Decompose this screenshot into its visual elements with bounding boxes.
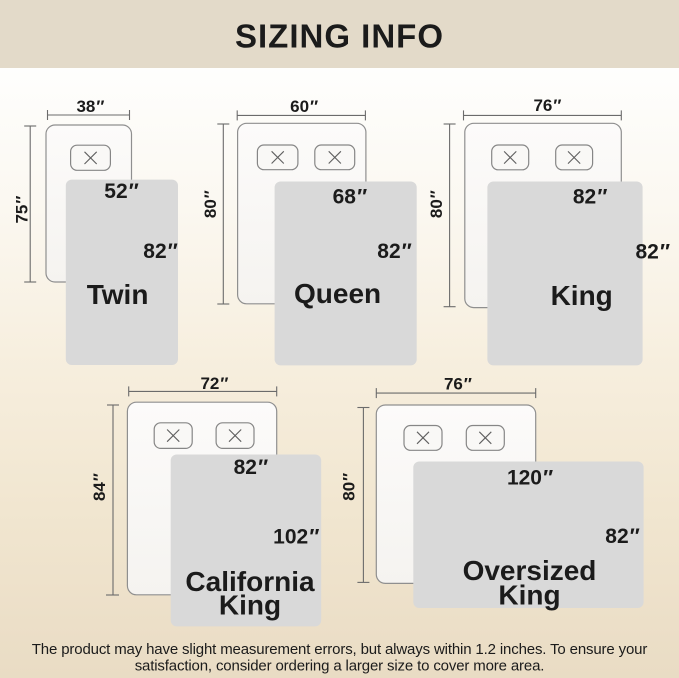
svg-text:38″: 38″ <box>76 97 104 116</box>
svg-text:King: King <box>551 280 613 311</box>
svg-text:82″: 82″ <box>234 456 268 479</box>
svg-text:King: King <box>219 590 281 621</box>
svg-text:75″: 75″ <box>13 196 32 224</box>
svg-text:King: King <box>498 580 560 611</box>
svg-text:68″: 68″ <box>333 186 367 209</box>
svg-text:80″: 80″ <box>340 473 359 501</box>
svg-text:102″: 102″ <box>273 526 319 549</box>
svg-text:82″: 82″ <box>635 241 669 264</box>
svg-text:72″: 72″ <box>200 374 228 393</box>
svg-text:120″: 120″ <box>507 467 553 490</box>
svg-text:Queen: Queen <box>294 278 381 309</box>
svg-text:76″: 76″ <box>444 375 472 394</box>
svg-text:82″: 82″ <box>605 525 639 548</box>
svg-text:Twin: Twin <box>87 279 149 310</box>
svg-text:82″: 82″ <box>143 240 177 263</box>
svg-text:84″: 84″ <box>90 473 109 501</box>
svg-text:76″: 76″ <box>533 96 561 115</box>
svg-text:80″: 80″ <box>427 190 446 218</box>
svg-text:82″: 82″ <box>377 240 411 263</box>
svg-text:satisfaction, consider orderin: satisfaction, consider ordering a larger… <box>135 658 545 675</box>
svg-text:80″: 80″ <box>201 190 220 218</box>
svg-text:SIZING INFO: SIZING INFO <box>235 18 444 55</box>
svg-text:52″: 52″ <box>104 180 138 203</box>
svg-text:82″: 82″ <box>573 186 607 209</box>
svg-text:60″: 60″ <box>290 97 318 116</box>
svg-text:The product may have slight me: The product may have slight measurement … <box>32 641 648 658</box>
